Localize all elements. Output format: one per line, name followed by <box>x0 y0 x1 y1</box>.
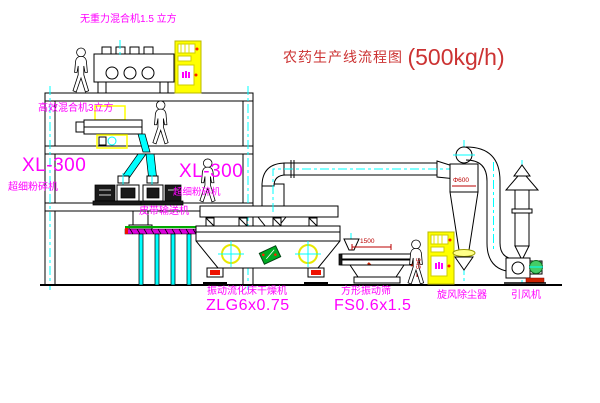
label-sieve-name: 方形振动筛 <box>341 287 391 297</box>
label-belt-conveyor: 皮带输送机 <box>139 207 189 217</box>
exhaust-duct <box>262 160 460 212</box>
square-sieve <box>339 233 417 283</box>
title-text: 农药生产线流程图 <box>283 49 403 65</box>
dim-sieve-length: 1500 <box>360 239 374 246</box>
label-dryer-model: ZLG6x0.75 <box>206 298 290 314</box>
label-gravity-free-mixer: 无重力混合机1.5 立方 <box>80 15 177 25</box>
label-pulverizer-left-name: 超细粉碎机 <box>8 183 58 193</box>
label-sieve-model: FS0.6x1.5 <box>334 298 411 314</box>
label-pulverizer-mid-model: XL-300 <box>179 162 243 181</box>
page-title: 农药生产线流程图 (500kg/h) <box>283 44 505 71</box>
person-figure <box>73 48 89 92</box>
pulverizer-left <box>93 173 141 205</box>
label-dryer-name: 振动流化床干燥机 <box>207 287 287 297</box>
belt-conveyor <box>125 227 199 285</box>
title-capacity: (500kg/h) <box>407 44 504 70</box>
control-cabinet-upper <box>175 41 201 93</box>
fluid-bed-dryer <box>196 206 340 283</box>
flow-diagram-page: 农药生产线流程图 (500kg/h) 无重力混合机1.5 立方 高效混合机3立方… <box>0 0 600 403</box>
dim-cyclone-diameter: Φ600 <box>453 178 469 185</box>
dim-sieve-height: 345 <box>414 258 421 269</box>
person-figure <box>153 101 168 144</box>
label-pulverizer-left-model: XL-300 <box>22 156 86 175</box>
induced-draft-fan <box>504 258 546 283</box>
control-cabinet-lower <box>428 232 454 284</box>
label-pulverizer-mid-name: 超细粉碎机 <box>173 188 221 198</box>
gravity-free-mixer <box>94 40 186 93</box>
label-induced-draft-fan: 引风机 <box>511 291 541 301</box>
label-cyclone: 旋风除尘器 <box>437 291 487 301</box>
label-high-efficiency-mixer: 高效混合机3立方 <box>38 104 114 114</box>
